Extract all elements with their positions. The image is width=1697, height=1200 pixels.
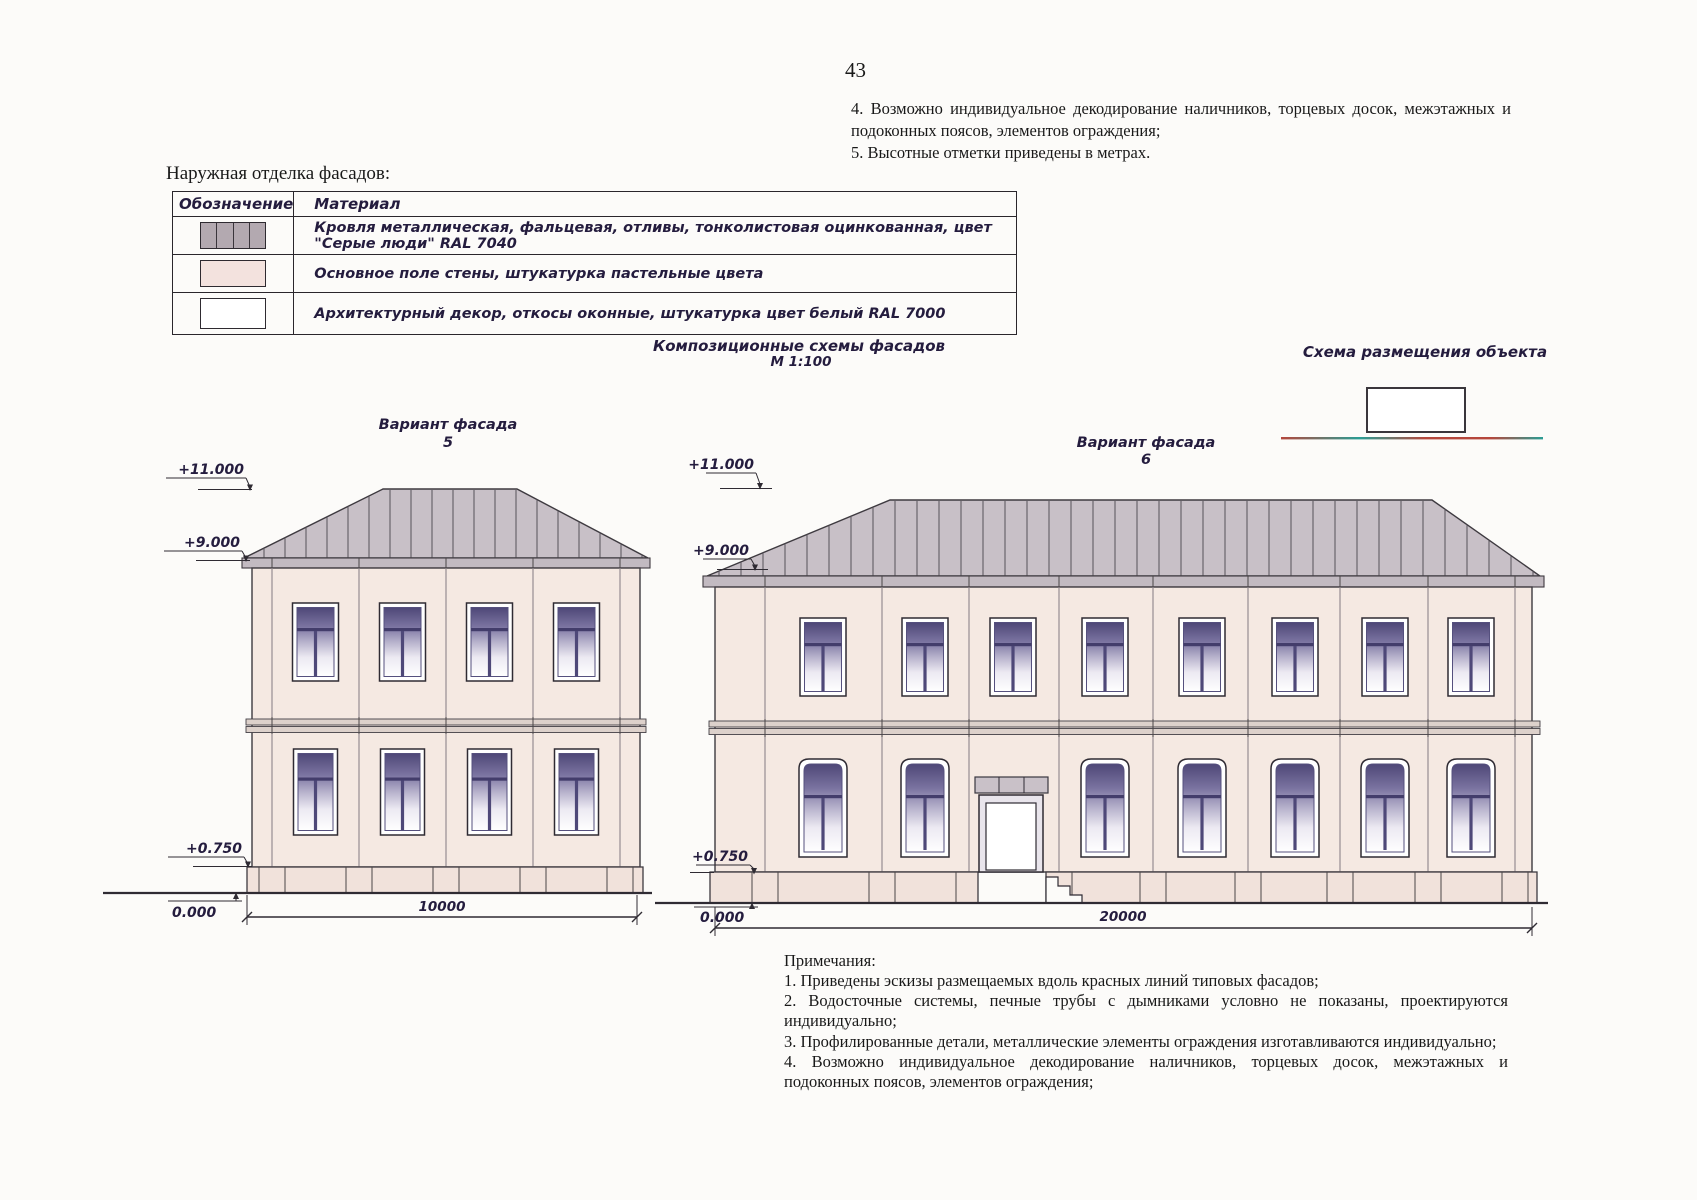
elevation-mark-ridge: +11.000	[166, 462, 253, 491]
roof	[707, 500, 1540, 576]
window	[799, 759, 847, 857]
window	[1082, 618, 1128, 696]
roof	[244, 489, 648, 558]
floor-band	[709, 729, 1540, 735]
dimension-label: 10000	[419, 899, 466, 915]
dimension-label: 20000	[1100, 909, 1147, 925]
plinth	[1046, 872, 1537, 903]
window	[381, 749, 425, 835]
plinth	[710, 872, 978, 903]
facade-number: 5	[443, 435, 453, 451]
elevation-mark-ground: 0.000	[694, 903, 758, 927]
svg-text:+9.000: +9.000	[693, 543, 749, 559]
notes-title: Примечания:	[784, 951, 1508, 971]
composition-scale: М 1:100	[770, 354, 831, 370]
elevation-mark-plinth: +0.750	[168, 841, 252, 868]
window	[1447, 759, 1495, 857]
window	[800, 618, 846, 696]
placement-caption: Схема размещения объекта	[1303, 343, 1547, 361]
plinth	[247, 867, 643, 893]
window	[555, 749, 599, 835]
svg-text:+9.000: +9.000	[184, 535, 240, 551]
floor-band	[709, 721, 1540, 727]
svg-text:+0.750: +0.750	[692, 849, 748, 865]
cornice	[703, 576, 1544, 587]
window	[990, 618, 1036, 696]
window	[380, 603, 426, 681]
note-item: 3. Профилированные детали, металлические…	[784, 1032, 1508, 1052]
facade-label: Вариант фасада	[1077, 435, 1216, 451]
svg-text:+0.750: +0.750	[186, 841, 242, 857]
window	[1362, 618, 1408, 696]
facade-right-drawing: Вариант фасада 6	[655, 435, 1548, 936]
note-item: 1. Приведены эскизы размещаемых вдоль кр…	[784, 971, 1508, 991]
window	[1178, 759, 1226, 857]
window	[554, 603, 600, 681]
note-item: 2. Водосточные системы, печные трубы с д…	[784, 991, 1508, 1031]
door-canopy	[975, 777, 1048, 793]
notes-block: Примечания: 1. Приведены эскизы размещае…	[784, 951, 1508, 1092]
window	[901, 759, 949, 857]
facade-label: Вариант фасада	[379, 417, 518, 433]
facade-number: 6	[1141, 452, 1151, 468]
svg-text:0.000: 0.000	[700, 910, 745, 926]
door-leaf	[986, 803, 1036, 870]
note-item: 4. Возможно индивидуальное декодирование…	[784, 1052, 1508, 1092]
window	[293, 603, 339, 681]
window	[1271, 759, 1319, 857]
elevation-mark-ridge: +11.000	[688, 457, 772, 490]
scanned-document-page: 43 4. Возможно индивидуальное декодирова…	[0, 0, 1697, 1200]
elevation-mark-ground: 0.000	[168, 893, 242, 922]
window	[468, 749, 512, 835]
svg-text:0.000: 0.000	[172, 905, 217, 921]
placement-rectangle	[1367, 388, 1465, 432]
composition-caption: Композиционные схемы фасадов	[653, 337, 945, 355]
window	[902, 618, 948, 696]
window	[1081, 759, 1129, 857]
svg-text:+11.000: +11.000	[688, 457, 754, 473]
window	[1272, 618, 1318, 696]
window	[1448, 618, 1494, 696]
svg-text:+11.000: +11.000	[178, 462, 244, 478]
facade-left-drawing: Вариант фасада 5 10000 +11.000	[103, 417, 652, 925]
window	[294, 749, 338, 835]
elevation-mark-eaves: +9.000	[164, 535, 250, 562]
red-line	[1281, 437, 1543, 439]
window	[467, 603, 513, 681]
window	[1179, 618, 1225, 696]
window	[1361, 759, 1409, 857]
